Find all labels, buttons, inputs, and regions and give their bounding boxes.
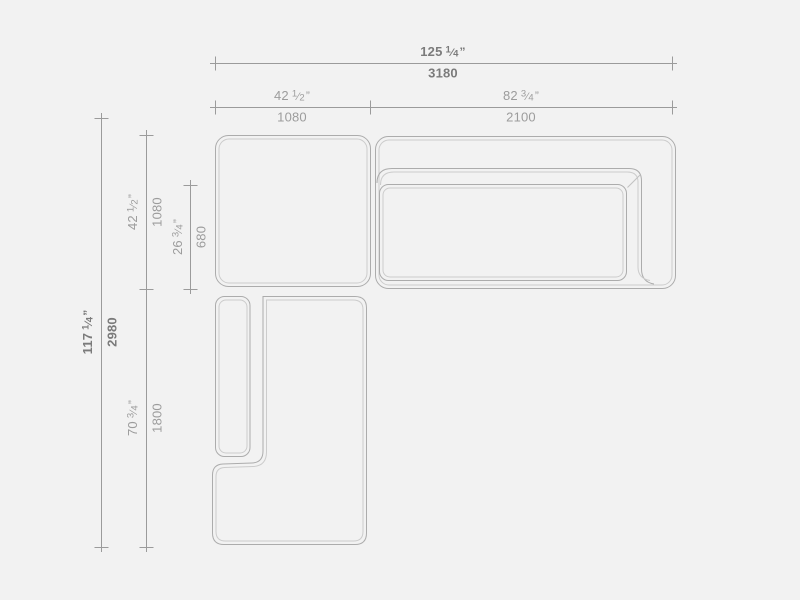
dim-line-segment-heights bbox=[140, 130, 154, 552]
dim-overall-width-inches: 1251⁄4” bbox=[420, 45, 466, 59]
ottoman-outline bbox=[216, 136, 371, 287]
sofa-plan-drawing: 1251⁄4” 3180 421⁄2” 1080 823⁄4” 2100 117… bbox=[0, 0, 800, 600]
dim-seat-depth-inches: 263⁄4” bbox=[171, 219, 185, 255]
dim-seat-depth-mm: 680 bbox=[195, 226, 208, 248]
dim-bottom-height-inches: 703⁄4” bbox=[126, 400, 140, 436]
sofa-module-top-right bbox=[376, 137, 676, 289]
backrest-arm-inner-edge bbox=[377, 169, 654, 285]
chaise-seat-piping-line bbox=[216, 300, 363, 541]
dim-right-width-inches: 823⁄4” bbox=[503, 89, 539, 103]
sofa-shell-outline bbox=[376, 137, 676, 289]
dim-right-width-mm: 2100 bbox=[506, 111, 536, 124]
chaise-seat-outline bbox=[213, 297, 367, 545]
ottoman-piping-line bbox=[219, 139, 367, 283]
seat-cushion-piping-line bbox=[383, 188, 623, 277]
seat-cushion-outline bbox=[380, 185, 627, 281]
dim-overall-width-mm: 3180 bbox=[428, 67, 458, 80]
left-armrest-outline bbox=[216, 297, 251, 457]
chaise-module-bottom-left bbox=[213, 297, 367, 545]
dim-overall-height-mm: 2980 bbox=[106, 317, 119, 347]
dim-top-height-inches: 421⁄2” bbox=[126, 194, 140, 230]
dim-overall-height-inches: 1171⁄4” bbox=[81, 310, 95, 355]
dim-bottom-height-mm: 1800 bbox=[151, 403, 164, 433]
sofa-modules bbox=[213, 136, 676, 545]
dim-left-width-mm: 1080 bbox=[277, 111, 307, 124]
dim-top-height-mm: 1080 bbox=[151, 197, 164, 227]
plan-linework bbox=[0, 0, 800, 600]
dimension-lines bbox=[95, 57, 678, 553]
dim-left-width-inches: 421⁄2” bbox=[274, 89, 310, 103]
left-armrest-piping-line bbox=[219, 300, 247, 453]
sofa-shell-piping-line bbox=[379, 140, 672, 285]
corner-ottoman-module bbox=[216, 136, 371, 287]
